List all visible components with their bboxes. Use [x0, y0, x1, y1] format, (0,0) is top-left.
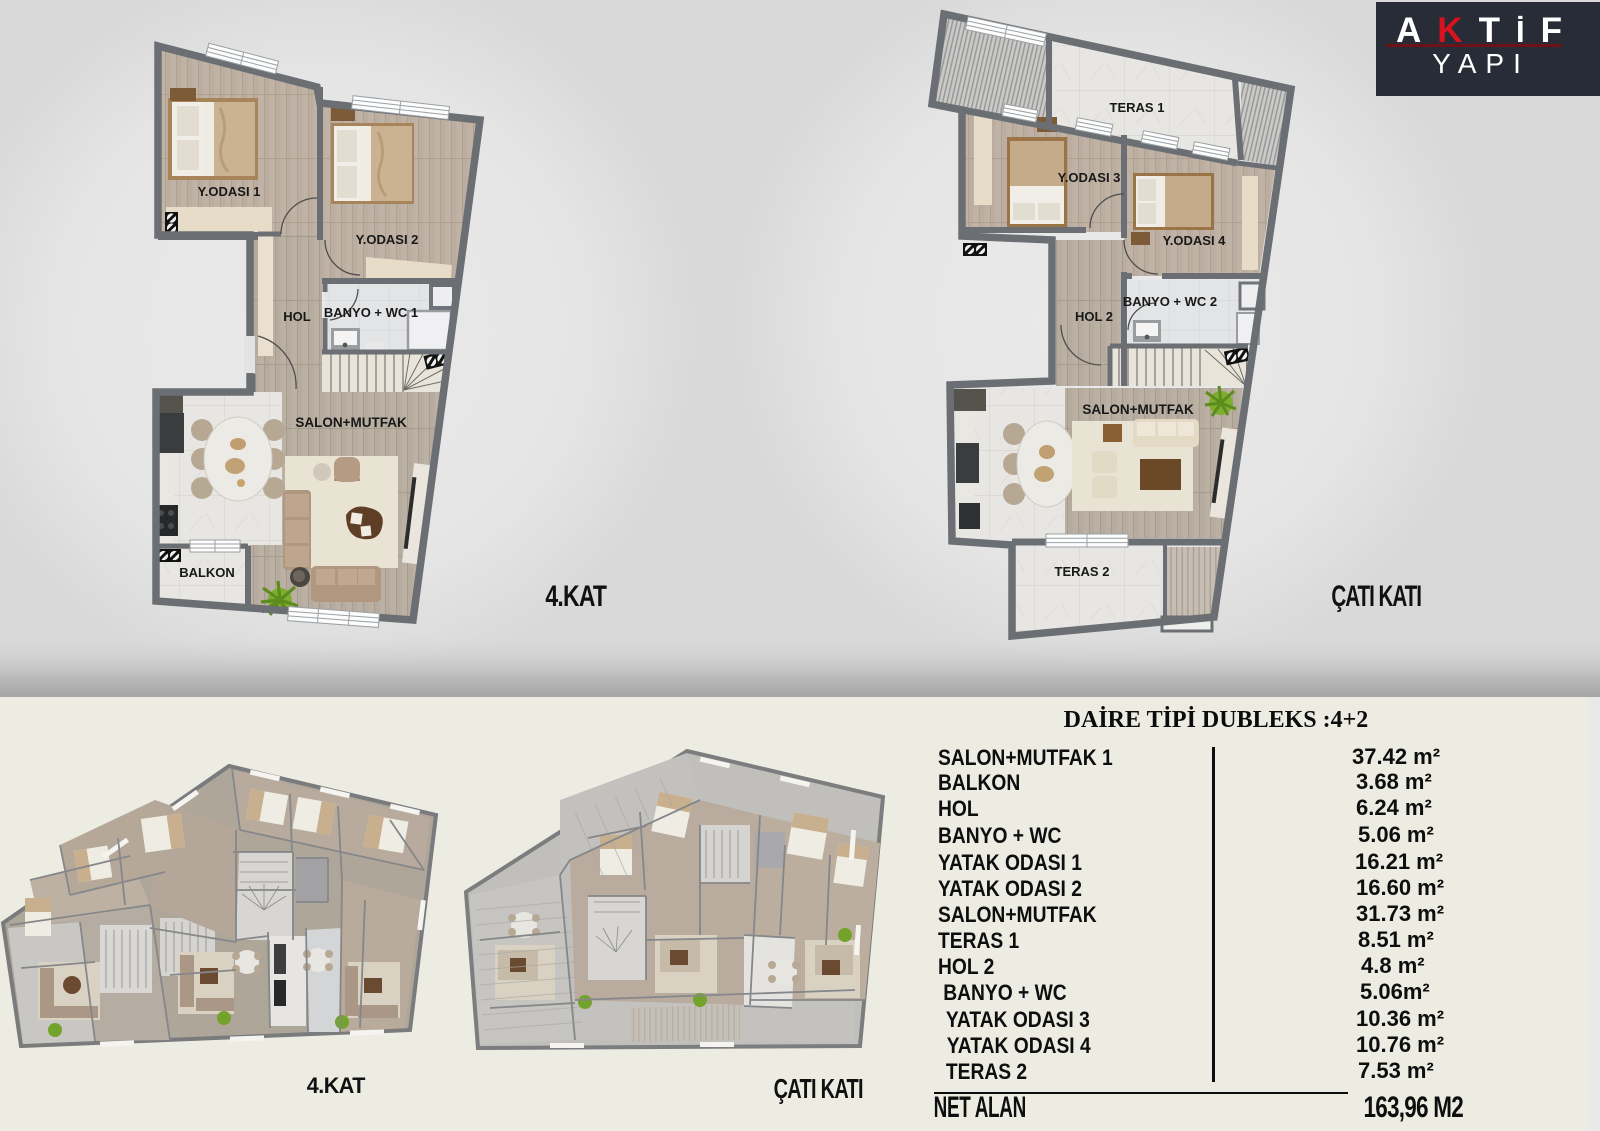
svg-text:10.76 m²: 10.76 m² — [1356, 1032, 1444, 1057]
svg-text:BANYO + WC 2: BANYO + WC 2 — [1123, 294, 1217, 309]
svg-text:YATAK ODASI 1: YATAK ODASI 1 — [938, 851, 1082, 875]
svg-text:YATAK ODASI 2: YATAK ODASI 2 — [938, 877, 1082, 901]
svg-text:8.51 m²: 8.51 m² — [1358, 927, 1434, 952]
svg-text:7.53 m²: 7.53 m² — [1358, 1058, 1434, 1083]
svg-text:HOL 2: HOL 2 — [938, 955, 994, 979]
svg-text:YATAK ODASI 4: YATAK ODASI 4 — [947, 1034, 1091, 1058]
svg-text:ÇATI KATI: ÇATI KATI — [774, 1074, 863, 1105]
svg-text:BALKON: BALKON — [938, 771, 1020, 795]
svg-text:37.42 m²: 37.42 m² — [1352, 744, 1440, 769]
svg-text:Y.ODASI 4: Y.ODASI 4 — [1163, 233, 1227, 248]
svg-text:5.06 m²: 5.06 m² — [1358, 822, 1434, 847]
svg-text:Y.ODASI 1: Y.ODASI 1 — [198, 184, 261, 199]
svg-text:Y.ODASI 2: Y.ODASI 2 — [356, 232, 419, 247]
svg-text:5.06m²: 5.06m² — [1360, 979, 1430, 1004]
svg-text:YAPI: YAPI — [1432, 48, 1530, 79]
svg-text:4.KAT: 4.KAT — [307, 1073, 366, 1098]
svg-text:163,96 M2: 163,96 M2 — [1364, 1090, 1464, 1124]
svg-text:TERAS 1: TERAS 1 — [938, 929, 1019, 953]
svg-text:31.73 m²: 31.73 m² — [1356, 901, 1444, 926]
svg-text:3.68 m²: 3.68 m² — [1356, 769, 1432, 794]
svg-text:6.24 m²: 6.24 m² — [1356, 795, 1432, 820]
svg-text:TERAS 2: TERAS 2 — [1055, 564, 1110, 579]
svg-text:16.60 m²: 16.60 m² — [1356, 875, 1444, 900]
svg-text:YATAK ODASI 3: YATAK ODASI 3 — [946, 1008, 1090, 1032]
svg-text:NET ALAN: NET ALAN — [934, 1091, 1026, 1125]
svg-text:Y.ODASI 3: Y.ODASI 3 — [1058, 170, 1121, 185]
svg-text:HOL: HOL — [283, 309, 311, 324]
svg-text:TERAS 2: TERAS 2 — [946, 1060, 1027, 1084]
svg-text:BALKON: BALKON — [179, 565, 235, 580]
svg-text:SALON+MUTFAK: SALON+MUTFAK — [295, 415, 407, 430]
svg-text:BANYO + WC: BANYO + WC — [938, 824, 1062, 848]
svg-text:4.KAT: 4.KAT — [545, 579, 607, 613]
svg-text:BANYO + WC: BANYO + WC — [943, 981, 1067, 1005]
svg-text:DAİRE TİPİ DUBLEKS :4+2: DAİRE TİPİ DUBLEKS :4+2 — [1064, 707, 1369, 733]
svg-text:4.8 m²: 4.8 m² — [1361, 953, 1425, 978]
svg-text:16.21 m²: 16.21 m² — [1355, 849, 1443, 874]
svg-text:SALON+MUTFAK: SALON+MUTFAK — [938, 903, 1097, 927]
svg-text:SALON+MUTFAK 1: SALON+MUTFAK 1 — [938, 746, 1113, 770]
svg-text:SALON+MUTFAK: SALON+MUTFAK — [1082, 402, 1194, 417]
svg-text:HOL: HOL — [938, 797, 979, 821]
svg-text:ÇATI KATI: ÇATI KATI — [1331, 580, 1421, 613]
svg-text:TERAS 1: TERAS 1 — [1110, 100, 1165, 115]
svg-text:BANYO + WC 1: BANYO + WC 1 — [324, 305, 418, 320]
svg-text:10.36 m²: 10.36 m² — [1356, 1006, 1444, 1031]
svg-text:HOL 2: HOL 2 — [1075, 309, 1113, 324]
